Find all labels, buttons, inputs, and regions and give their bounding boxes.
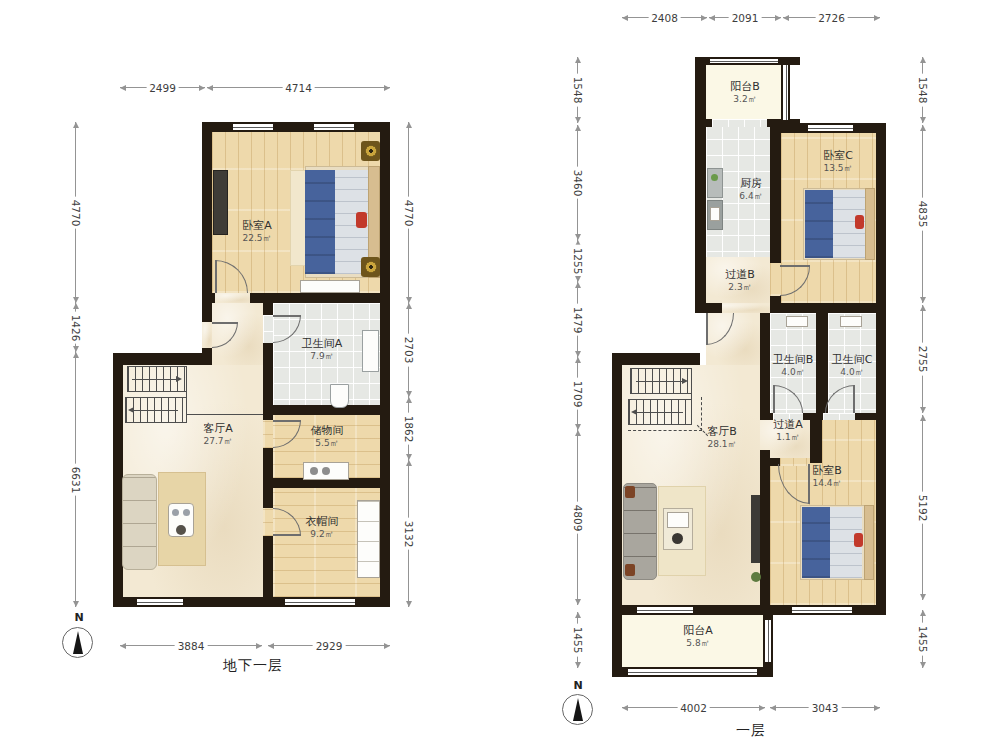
cup: [183, 509, 190, 516]
wall: [202, 122, 212, 322]
door-opening: [215, 293, 250, 303]
sofa-pillow: [625, 564, 635, 576]
room-area: 5.5㎡: [311, 437, 344, 448]
dimension: 4770: [408, 122, 409, 303]
room-area: 28.1㎡: [707, 438, 737, 449]
bed-a-pillow: [356, 212, 367, 228]
dimension: 2726: [783, 17, 880, 18]
bed-c-headboard: [865, 188, 875, 260]
room-area: 9.2㎡: [306, 528, 339, 539]
room-label-kitchen: 厨房 6.4㎡: [739, 177, 762, 202]
room-area: 2.3㎡: [725, 281, 755, 292]
dimension: 3460: [577, 125, 578, 240]
compass-north-label: N: [573, 679, 582, 692]
window: [233, 122, 273, 132]
window: [781, 65, 790, 120]
door-opening: [263, 420, 273, 448]
bathroom-sink: [786, 316, 808, 327]
dimension-value: 1455: [572, 624, 584, 657]
wall: [760, 450, 770, 605]
bathroom-sink: [840, 316, 862, 327]
washer-knob: [322, 467, 330, 475]
dimension-value: 2091: [729, 12, 762, 24]
wall: [202, 293, 215, 303]
room-label-hall-a: 过道A 1.1㎡: [773, 418, 803, 443]
window: [137, 597, 183, 607]
dimension-value: 4714: [282, 82, 315, 94]
cup: [172, 509, 179, 516]
dimension: 1862: [408, 397, 409, 460]
room-area: 22.5㎡: [242, 232, 272, 243]
wall: [810, 413, 822, 463]
fridge: [707, 168, 723, 198]
dimension-value: 5192: [917, 491, 929, 524]
fridge-detail: [711, 174, 718, 181]
bed-b-pillow: [854, 533, 863, 547]
wall: [695, 303, 722, 313]
compass-icon: [62, 627, 93, 658]
door-opening: [263, 508, 273, 536]
dimension-value: 2755: [917, 343, 929, 376]
dimension-value: 4770: [70, 196, 82, 229]
wall: [876, 123, 886, 615]
sofa-pillow: [625, 486, 635, 498]
floorplan-canvas: 卧室A 22.5㎡ 卫生间A 7.9㎡ 客厅A 27.7㎡ 储物间 5.5㎡ 衣…: [0, 0, 1000, 750]
dimension: 2408: [622, 17, 707, 18]
dimension-value: 2703: [403, 334, 415, 367]
dimension: 4714: [207, 87, 390, 88]
dimension-value: 3460: [572, 166, 584, 199]
room-label-bedroom-b: 卧室B 14.4㎡: [812, 464, 842, 489]
stairs-arrow-up: [132, 379, 176, 380]
wall: [263, 303, 273, 315]
room-label-hall-b: 过道B 2.3㎡: [725, 268, 755, 293]
dimension-value: 4002: [677, 702, 710, 714]
door-leaf: [273, 534, 301, 536]
dimension: 4002: [622, 707, 765, 708]
window: [628, 667, 757, 677]
door-opening: [202, 322, 212, 348]
dimension-value: 3043: [809, 702, 842, 714]
room-label-living-b: 客厅B 28.1㎡: [707, 425, 737, 450]
room-label-living-a: 客厅A 27.7㎡: [203, 422, 233, 447]
dimension: 1426: [75, 303, 76, 352]
compass-needle-icon: [73, 631, 83, 654]
dimension: 2703: [408, 303, 409, 397]
wall: [263, 536, 273, 597]
dimension: 1548: [922, 57, 923, 123]
dimension: 2929: [268, 645, 390, 646]
door-leaf: [853, 385, 855, 413]
dimension: 3132: [408, 460, 409, 607]
wall: [770, 303, 876, 313]
dimension: 4770: [75, 122, 76, 303]
wall: [250, 293, 390, 303]
door-leaf: [273, 420, 301, 422]
room-area: 6.4㎡: [739, 190, 762, 201]
wall: [612, 353, 622, 615]
wall: [695, 119, 712, 127]
room-label-balcony-a: 阳台A 5.8㎡: [683, 624, 713, 649]
nightstand-speaker: [361, 141, 380, 161]
wall: [263, 405, 390, 415]
sofa: [122, 474, 157, 570]
dimension: 1455: [577, 612, 578, 668]
room-name: 卫生间A: [302, 337, 343, 351]
dimension-value: 1862: [403, 412, 415, 445]
room-label-bedroom-c: 卧室C 13.5㎡: [823, 149, 853, 174]
room-name: 衣帽间: [306, 515, 339, 529]
bed-c-blanket: [805, 190, 833, 258]
dimension: 2499: [120, 87, 205, 88]
dimension: 4835: [922, 125, 923, 303]
dimension-value: 1426: [70, 311, 82, 344]
room-area: 1.1㎡: [773, 431, 803, 442]
wall: [695, 127, 706, 303]
stairs-arrow-up: [636, 381, 682, 382]
compass-north-label: N: [74, 611, 83, 624]
room-name: 卧室C: [823, 149, 853, 163]
dimension: 3884: [120, 645, 262, 646]
dimension-value: 1479: [572, 303, 584, 336]
room-label-bath-c: 卫生间C 4.0㎡: [832, 353, 873, 378]
dimension-value: 1455: [917, 623, 929, 656]
room-name: 储物间: [311, 424, 344, 438]
wall: [202, 122, 390, 132]
dimension: 4809: [577, 430, 578, 605]
compass-needle-icon: [573, 698, 583, 721]
door-opening: [823, 413, 855, 420]
door-leaf: [215, 260, 217, 293]
room-area: 3.2㎡: [730, 93, 760, 104]
floor-title-basement: 地下一层: [223, 657, 283, 675]
dimension-value: 1548: [917, 74, 929, 107]
opening: [712, 119, 767, 127]
room-label-bath-b: 卫生间B 4.0㎡: [773, 353, 814, 378]
room-name: 阳台A: [683, 624, 713, 638]
dimension: 2091: [709, 17, 781, 18]
dimension-value: 2499: [146, 82, 179, 94]
room-label-cloakroom: 衣帽间 9.2㎡: [306, 515, 339, 540]
stairs-dashed-outline: [628, 397, 702, 431]
room-area: 14.4㎡: [812, 477, 842, 488]
dimension-value: 1709: [572, 377, 584, 410]
room-name: 卧室A: [242, 219, 272, 233]
room-area: 4.0㎡: [773, 366, 814, 377]
wardrobe-cabinet: [357, 500, 380, 578]
dimension: 3043: [770, 707, 880, 708]
door-leaf: [773, 385, 775, 413]
dimension-value: 2929: [313, 640, 346, 652]
stairs-arrow-down: [134, 410, 178, 411]
bathroom-sink: [362, 330, 379, 372]
room-name: 卧室B: [812, 464, 842, 478]
window: [763, 620, 773, 662]
bed-b-headboard: [864, 505, 874, 580]
washer-knob: [310, 467, 318, 475]
tv: [751, 495, 760, 563]
stairs-rail-line: [187, 414, 263, 415]
plant: [751, 572, 761, 582]
door-leaf: [706, 313, 708, 345]
wall: [770, 296, 781, 303]
room-area: 27.7㎡: [203, 435, 233, 446]
wall: [760, 313, 770, 420]
room-name: 厨房: [739, 177, 762, 191]
dimension: 1255: [577, 240, 578, 282]
window: [808, 123, 853, 133]
door-opening: [263, 315, 273, 343]
room-area: 13.5㎡: [823, 162, 853, 173]
wall: [695, 57, 706, 127]
room-name: 卫生间B: [773, 353, 814, 367]
room-area: 7.9㎡: [302, 350, 343, 361]
window: [710, 57, 778, 65]
bed-a-blanket: [305, 170, 335, 274]
dimension-value: 3884: [175, 640, 208, 652]
compass-icon: [562, 694, 593, 725]
dimension: 6631: [75, 352, 76, 607]
window: [637, 605, 693, 615]
kettle: [672, 533, 683, 544]
room-label-bedroom-a: 卧室A 22.5㎡: [242, 219, 272, 244]
bed-c-pillow: [855, 215, 864, 229]
dimension-value: 2726: [815, 12, 848, 24]
room-area: 4.0㎡: [832, 366, 873, 377]
dimension: 1548: [577, 57, 578, 123]
dimension-value: 2408: [648, 12, 681, 24]
sink-basin: [710, 207, 720, 221]
table-tray: [667, 512, 689, 528]
teapot: [176, 525, 186, 535]
door-leaf: [212, 322, 238, 324]
dimension: 5192: [922, 415, 923, 600]
dimension: 1709: [577, 357, 578, 430]
dimension-value: 6631: [70, 463, 82, 496]
room-label-bath-a: 卫生间A 7.9㎡: [302, 337, 343, 362]
door-leaf: [273, 315, 301, 317]
nightstand-speaker: [361, 257, 380, 277]
room-name: 卫生间C: [832, 353, 873, 367]
window: [792, 605, 852, 615]
wall: [113, 353, 212, 365]
dresser: [300, 280, 360, 293]
window: [285, 597, 355, 607]
toilet: [330, 384, 349, 408]
room-name: 过道B: [725, 268, 755, 282]
floor-title-first: 一层: [736, 722, 766, 740]
wardrobe: [213, 170, 228, 235]
room-name: 客厅A: [203, 422, 233, 436]
room-label-balcony-b: 阳台B 3.2㎡: [730, 80, 760, 105]
door-leaf: [780, 265, 810, 267]
room-label-storage: 储物间 5.5㎡: [311, 424, 344, 449]
wall: [770, 123, 781, 263]
wall: [380, 122, 390, 607]
wall: [816, 313, 828, 413]
window: [314, 122, 354, 132]
dimension-value: 4835: [917, 198, 929, 231]
door-leaf: [808, 464, 810, 504]
bed-b-blanket: [802, 507, 830, 578]
wall: [855, 413, 876, 420]
room-name: 客厅B: [707, 425, 737, 439]
dimension: 1479: [577, 282, 578, 357]
dimension-value: 4809: [572, 501, 584, 534]
room-name: 阳台B: [730, 80, 760, 94]
room-name: 过道A: [773, 418, 803, 432]
dimension: 1455: [922, 610, 923, 668]
dimension-value: 3132: [403, 517, 415, 550]
dimension: 2755: [922, 305, 923, 413]
dimension-value: 1548: [572, 74, 584, 107]
dimension-value: 4770: [403, 196, 415, 229]
wall: [612, 353, 700, 365]
dimension-value: 1255: [572, 245, 584, 278]
room-area: 5.8㎡: [683, 637, 713, 648]
